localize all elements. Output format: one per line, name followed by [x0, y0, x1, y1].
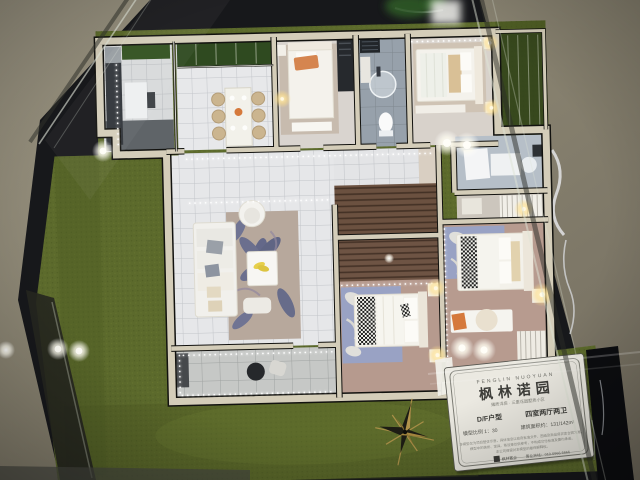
photo-of-scale-model: FENGLIN NUOYUAN 枫林诺园 臻质洋房 · 三重花园墅质小区 D/F…	[0, 0, 640, 480]
vignette	[0, 0, 640, 480]
scene: FENGLIN NUOYUAN 枫林诺园 臻质洋房 · 三重花园墅质小区 D/F…	[0, 0, 640, 480]
